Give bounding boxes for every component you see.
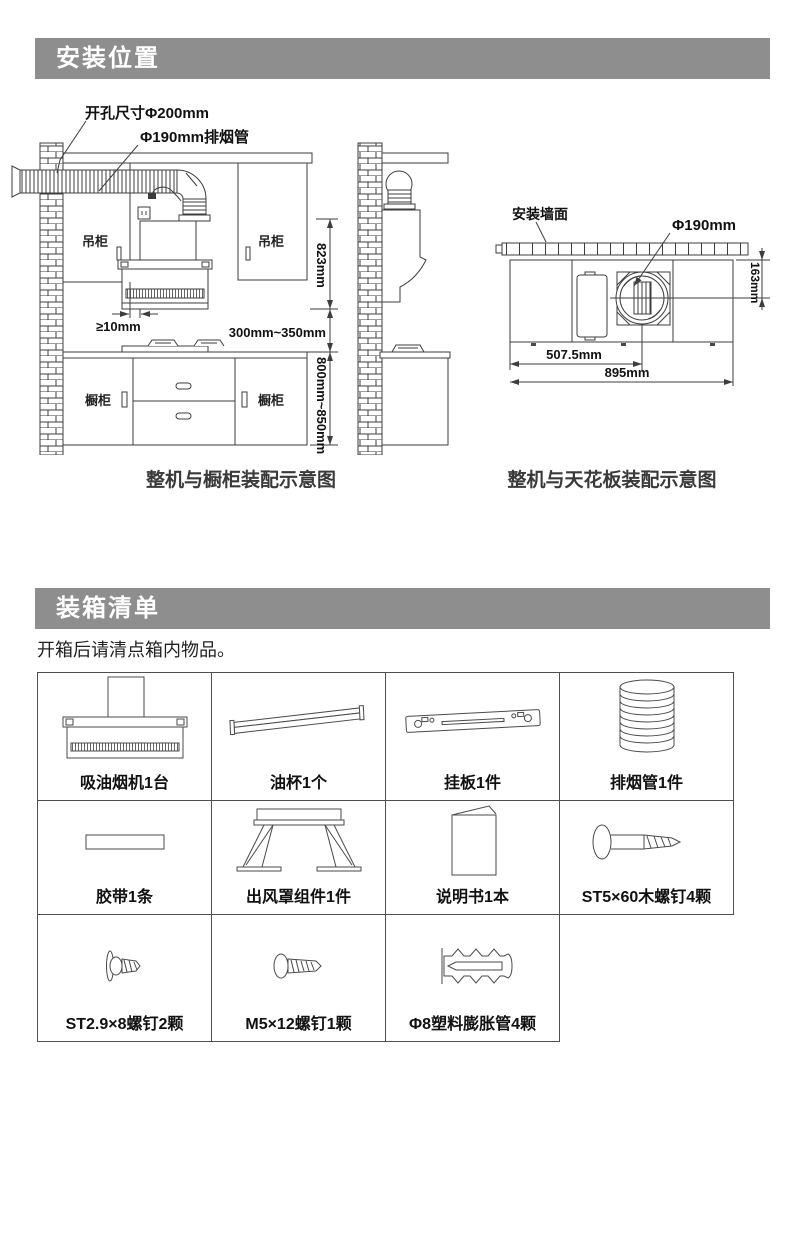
dim-163-label: 163mm (748, 262, 762, 303)
power-outlet (138, 207, 150, 219)
packing-item-expansion-anchor: Φ8塑料膨胀管4颗 (386, 915, 560, 1042)
dim-gap-label: ≥10mm (96, 319, 141, 334)
small-screw-icon (40, 924, 209, 1008)
manual-page: 安装位置 吊柜 吊柜 (0, 0, 790, 1245)
packing-item-outlet-cover: 出风罩组件1件 (212, 801, 386, 915)
front-diagram-caption: 整机与橱柜装配示意图 (101, 465, 381, 492)
packing-item-label: 排烟管1件 (562, 769, 731, 793)
dim-507-label: 507.5mm (546, 347, 602, 362)
packing-item-label: ST5×60木螺钉4颗 (562, 883, 731, 907)
outlet-diameter-label: Φ190mm (672, 217, 736, 234)
hood-side-profile (382, 210, 426, 302)
wood-screw-icon (562, 803, 731, 881)
packing-list-table: 吸油烟机1台 油杯1个 (37, 672, 734, 1042)
upper-cabinet-right (238, 163, 307, 280)
leader-line (536, 222, 546, 242)
grease-filter (126, 289, 204, 298)
cabinet-handle (117, 247, 121, 260)
packing-item-manual: 说明书1本 (386, 801, 560, 915)
oil-cup-icon (214, 675, 383, 767)
exhaust-pipe-icon (562, 675, 731, 767)
dim-clearance-label: 300mm~350mm (229, 325, 326, 340)
duct-flare (12, 166, 20, 197)
countertop-side (380, 352, 450, 358)
base-cabinet-side (382, 358, 448, 445)
hood-chimney (140, 221, 196, 260)
control-box (577, 275, 607, 337)
packing-item-hanging-plate: 挂板1件 (386, 673, 560, 801)
countertop (63, 352, 307, 358)
duct-flange (384, 204, 415, 209)
lower-cabinet-right-label: 橱柜 (258, 393, 284, 408)
packing-item-label: Φ8塑料膨胀管4颗 (388, 1010, 557, 1034)
drawer-handle (176, 413, 191, 419)
packing-item-oil-cup: 油杯1个 (212, 673, 386, 801)
lower-cabinet-left-label: 橱柜 (85, 393, 111, 408)
dim-823-label: 823mm (314, 243, 329, 288)
duct-elbow (177, 170, 206, 199)
upper-cabinet-left-label: 吊柜 (82, 234, 108, 249)
power-plug (148, 193, 156, 199)
tape-icon (40, 803, 209, 881)
cabinet-handle (246, 247, 250, 260)
top-view-diagram: 安装墙面 Φ190mm (496, 206, 770, 386)
packing-item-label: 油杯1个 (214, 769, 383, 793)
packing-item-machine-screw: M5×12螺钉1颗 (212, 915, 386, 1042)
section-header-packing: 装箱清单 (35, 588, 770, 629)
installation-diagrams: 吊柜 吊柜 开孔尺寸Φ200mm (0, 80, 790, 455)
mounting-wall (502, 243, 748, 255)
wall-label: 安装墙面 (512, 206, 568, 222)
cabinet-handle (242, 392, 247, 407)
machine-screw-icon (214, 924, 383, 1008)
packing-item-exhaust-pipe: 排烟管1件 (560, 673, 734, 801)
duct-flange (179, 215, 210, 221)
hole-size-label: 开孔尺寸Φ200mm (85, 104, 209, 122)
cabinet-handle (122, 392, 127, 407)
packing-intro-text: 开箱后请清点箱内物品。 (37, 636, 235, 662)
gas-hob (122, 346, 208, 352)
packing-item-label: 吸油烟机1台 (40, 769, 209, 793)
packing-item-label: M5×12螺钉1颗 (214, 1010, 383, 1034)
packing-item-range-hood: 吸油烟机1台 (38, 673, 212, 801)
duct-vertical (183, 199, 206, 215)
duct-collar (388, 190, 411, 204)
packing-item-label: 胶带1条 (40, 883, 209, 907)
packing-item-label: ST2.9×8螺钉2颗 (40, 1010, 209, 1034)
expansion-anchor-icon (388, 924, 557, 1008)
packing-item-label: 说明书1本 (388, 883, 557, 907)
side-view-diagram (358, 143, 450, 455)
front-view-diagram: 吊柜 吊柜 开孔尺寸Φ200mm (12, 104, 338, 455)
packing-item-tape: 胶带1条 (38, 801, 212, 915)
dim-counter-label: 800mm~850mm (314, 357, 329, 454)
pipe-label: Φ190mm排烟管 (140, 128, 249, 146)
brick-wall (358, 143, 382, 455)
top-diagram-caption: 整机与天花板装配示意图 (482, 465, 742, 492)
packing-item-label: 挂板1件 (388, 769, 557, 793)
range-hood-icon (40, 675, 209, 767)
upper-cabinet-right-label: 吊柜 (258, 234, 284, 249)
section-header-install: 安装位置 (35, 38, 770, 79)
hood-canopy (118, 260, 212, 269)
packing-item-wood-screw: ST5×60木螺钉4颗 (560, 801, 734, 915)
outlet-cover-icon (214, 803, 383, 881)
hanging-plate-icon (388, 675, 557, 767)
ceiling-board (382, 153, 448, 163)
packing-item-small-screw: ST2.9×8螺钉2颗 (38, 915, 212, 1042)
dim-895-label: 895mm (605, 365, 650, 380)
drawer-handle (176, 383, 191, 389)
packing-item-label: 出风罩组件1件 (214, 883, 383, 907)
exhaust-duct (20, 170, 177, 193)
ceiling-board (63, 153, 312, 163)
manual-icon (388, 803, 557, 881)
